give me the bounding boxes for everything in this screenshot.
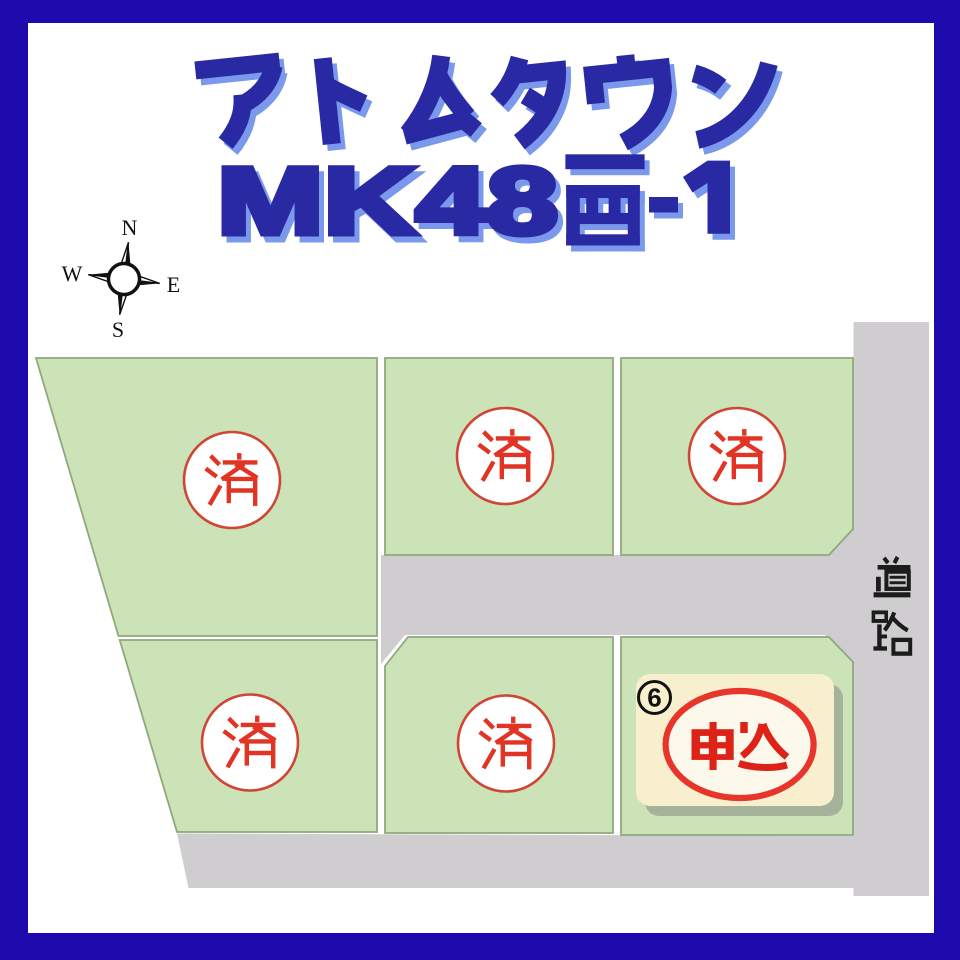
svg-text:S: S: [112, 317, 124, 342]
svg-text:N: N: [122, 215, 138, 240]
svg-text:E: E: [167, 272, 180, 297]
svg-text:6: 6: [647, 683, 661, 713]
svg-text:W: W: [62, 261, 83, 286]
